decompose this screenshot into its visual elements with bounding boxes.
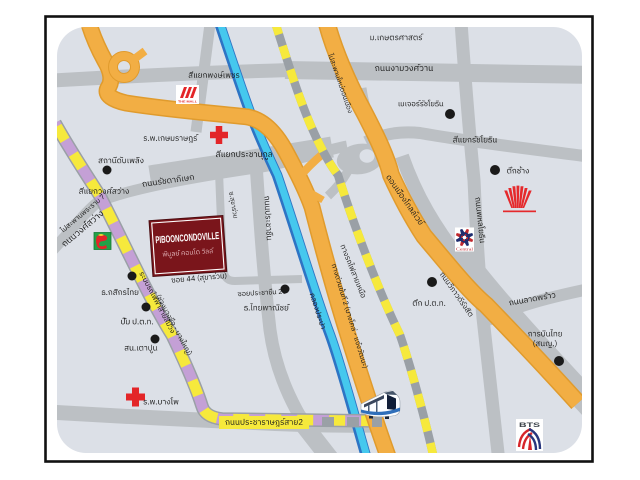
svg-text:THE MALL: THE MALL bbox=[178, 100, 197, 104]
svg-text:Central: Central bbox=[456, 247, 474, 252]
svg-text:BTS: BTS bbox=[519, 422, 541, 429]
